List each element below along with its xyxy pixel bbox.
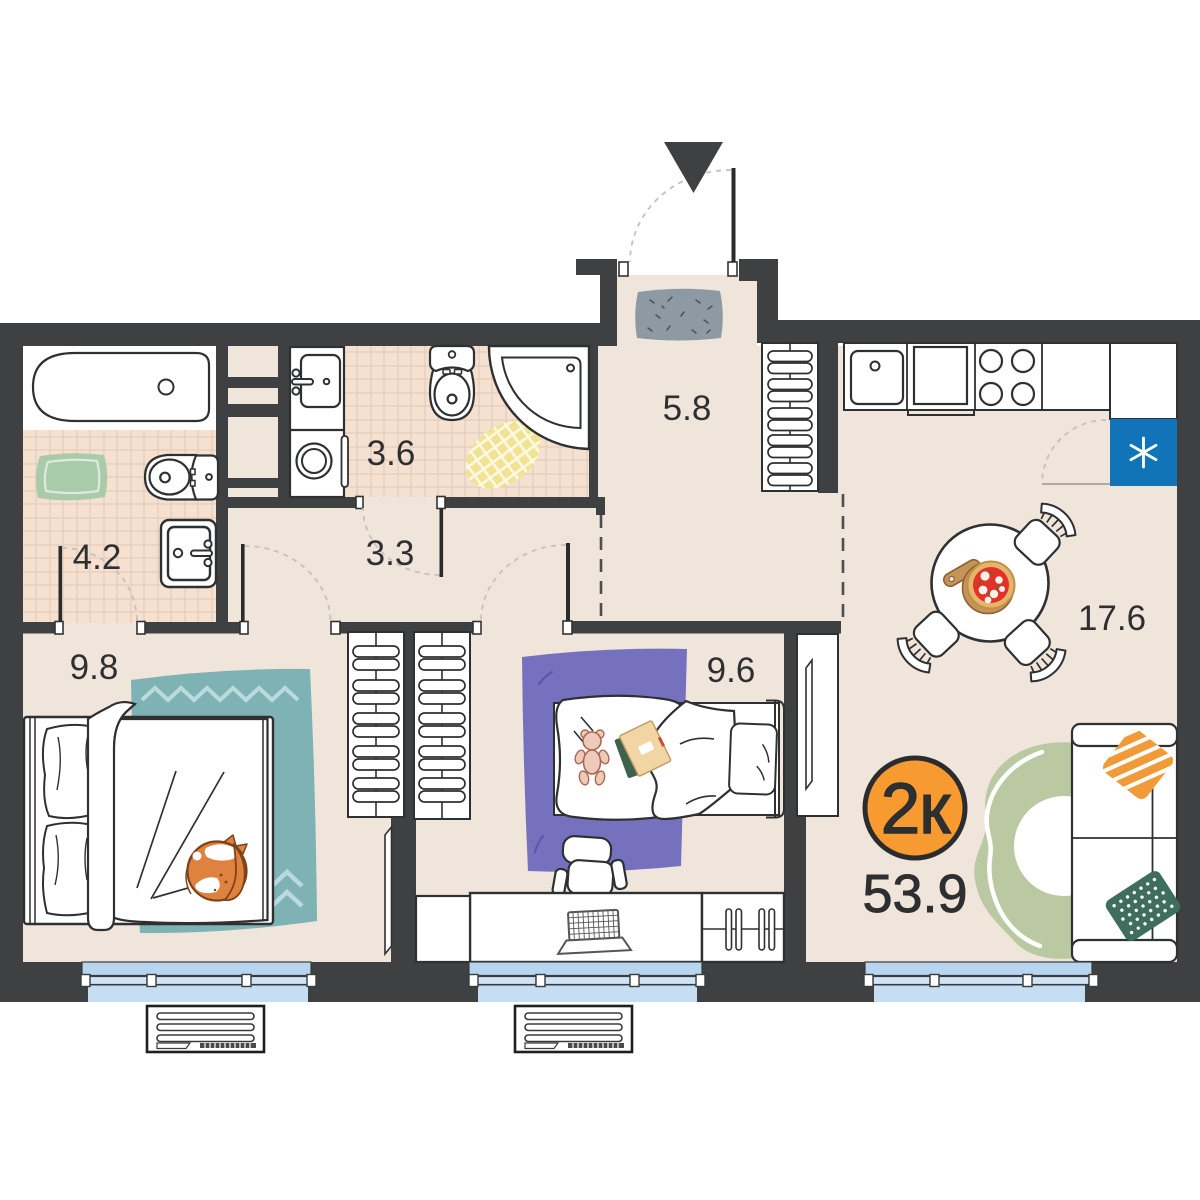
- svg-text:17.6: 17.6: [1078, 599, 1146, 638]
- svg-text:53.9: 53.9: [862, 864, 967, 924]
- svg-text:2к: 2к: [881, 770, 951, 849]
- svg-text:3.6: 3.6: [367, 434, 416, 473]
- svg-text:9.8: 9.8: [70, 648, 119, 687]
- svg-text:9.6: 9.6: [707, 651, 756, 690]
- svg-text:3.3: 3.3: [366, 534, 415, 573]
- svg-text:5.8: 5.8: [663, 389, 712, 428]
- svg-text:4.2: 4.2: [73, 538, 122, 577]
